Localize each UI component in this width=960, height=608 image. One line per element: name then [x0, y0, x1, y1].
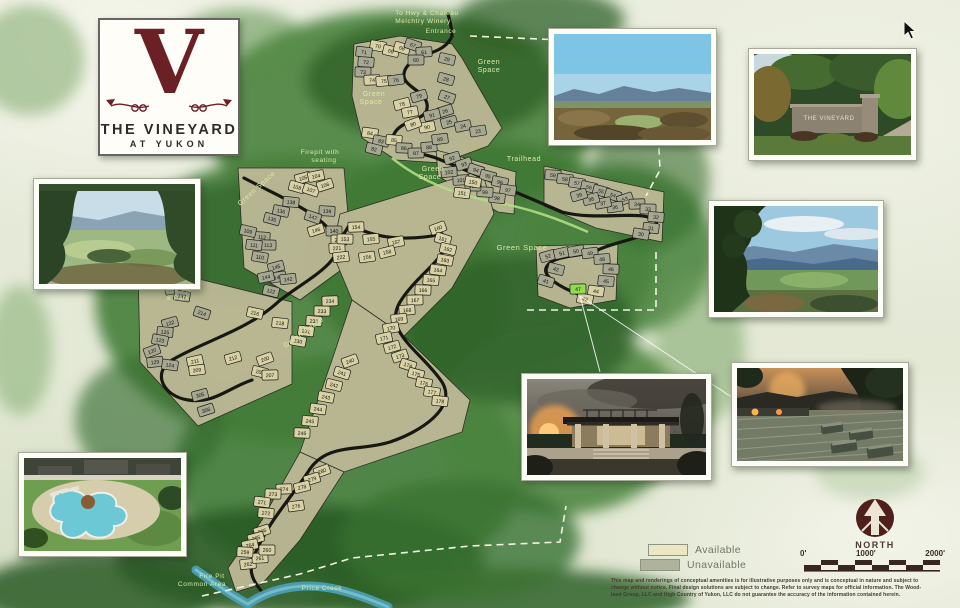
lot-parcel: 111 [245, 239, 262, 251]
lot-number: 222 [336, 255, 345, 262]
lot-number: 45 [603, 279, 609, 285]
lot-number: 142 [283, 277, 292, 284]
unavailable-swatch [640, 559, 680, 571]
lot-number: 113 [264, 243, 272, 249]
lot-number: 261 [256, 556, 265, 562]
photo-entrance-sign: THE VINEYARD [748, 48, 917, 161]
legend-row-unavailable: Unavailable [640, 559, 746, 571]
map-label: Melchtry Winery [395, 18, 451, 25]
lot-number: 102 [444, 170, 453, 177]
lot-number: 209 [192, 367, 201, 374]
scale-tick-0: 0' [800, 549, 806, 558]
map-label: Green Space [497, 243, 548, 252]
lot-parcel: 71 [355, 46, 372, 58]
lot-parcel: 246 [294, 428, 310, 439]
lot-number: 234 [326, 299, 335, 305]
lot-number: 30 [637, 232, 644, 239]
map-label: Space [360, 99, 383, 106]
north-indicator: NORTH [840, 497, 910, 550]
map-label: Entrance [426, 28, 457, 35]
map-label: Green [478, 59, 500, 66]
lot-number: 44 [593, 289, 600, 296]
logo-name: THE VINEYARD [100, 122, 238, 138]
lot-parcel: 142 [280, 273, 297, 285]
lot-number: 155 [367, 237, 376, 244]
lot-number: 75 [381, 79, 387, 85]
lot-number: 245 [305, 419, 314, 426]
lot-parcel: 151 [453, 187, 470, 199]
lot-parcel: 72 [358, 56, 375, 67]
lot-number: 271 [257, 499, 266, 506]
available-swatch [648, 544, 688, 556]
photo-pool-aerial [18, 452, 187, 557]
lot-parcel: 259 [237, 547, 254, 558]
available-label: Available [695, 544, 741, 556]
lot-parcel: 32 [648, 211, 665, 222]
map-label: Green [363, 91, 385, 98]
lot-parcel: 233 [314, 306, 330, 316]
lot-number: 129 [150, 359, 159, 366]
lot-number: 87 [413, 151, 419, 157]
lot-parcel: 164 [429, 264, 446, 276]
lot-number: 98 [494, 196, 500, 203]
lot-parcel: 46 [603, 264, 619, 275]
lot-parcel: 124 [161, 359, 178, 371]
lot-parcel: 76 [387, 74, 404, 86]
lot-number: 97 [505, 188, 512, 195]
lot-parcel: 154 [348, 222, 364, 233]
disclaimer-line-1: This map and renderings of conceptual am… [611, 578, 955, 585]
lot-parcel: 178 [432, 395, 449, 407]
lot-number: 165 [426, 278, 435, 285]
map-label: Common Area [178, 581, 226, 588]
photo-deck-rendering [731, 362, 909, 467]
lot-parcel: 260 [259, 545, 275, 555]
map-label: seating [311, 157, 336, 164]
lot-number: 138 [286, 200, 295, 207]
lot-number: 260 [263, 548, 272, 554]
lot-parcel: 89 [431, 133, 448, 145]
logo-letter-v: V [100, 22, 238, 102]
map-label: Space [419, 174, 442, 181]
lot-number: 273 [269, 492, 278, 498]
lot-parcel: 45 [598, 275, 615, 286]
lot-parcel: 218 [272, 317, 289, 329]
map-label: Price Creek [302, 585, 343, 592]
lot-parcel: 155 [363, 233, 380, 244]
lot-number: 89 [437, 137, 444, 144]
legend-row-available: Available [648, 544, 746, 556]
disclaimer-text: This map and renderings of conceptual am… [611, 578, 955, 599]
lot-number: 221 [333, 246, 342, 252]
lot-number: 272 [261, 511, 270, 518]
lot-number: 164 [433, 267, 443, 274]
lot-parcel: 272 [258, 507, 275, 518]
lot-number: 151 [457, 190, 466, 197]
photo-clubhouse-rendering [521, 373, 712, 481]
legend: Available Unavailable [648, 544, 746, 574]
lot-number: 50 [573, 249, 580, 256]
lot-number: 76 [393, 78, 400, 85]
lot-parcel: 222 [333, 251, 350, 263]
lot-number: 166 [419, 288, 428, 294]
lot-number: 156 [362, 254, 372, 261]
lot-number: 32 [653, 215, 659, 221]
lot-parcel: 167 [407, 295, 423, 305]
lot-parcel: 209 [188, 364, 205, 376]
mouse-cursor-icon [903, 20, 917, 40]
lot-number: 88 [426, 145, 432, 151]
compass-icon [853, 497, 897, 539]
lot-parcel: 156 [358, 251, 375, 263]
lot-parcel: 234 [322, 296, 338, 307]
lot-parcel: 271 [253, 496, 270, 508]
lot-number: 48 [599, 257, 605, 263]
map-label: Trailhead [507, 156, 541, 163]
lot-parcel: 276 [287, 500, 304, 512]
lot-number: 34 [634, 202, 640, 208]
lot-parcel: 244 [309, 403, 326, 415]
lot-number: 167 [411, 298, 420, 304]
lot-number: 58 [562, 177, 568, 184]
lot-number: 57 [574, 181, 581, 188]
scale-bar-graphic [800, 558, 945, 572]
lot-number: 86 [401, 146, 407, 152]
scale-tick-1000: 1000' [856, 549, 876, 558]
map-label: To Hwy & Chateau [395, 10, 458, 17]
lot-parcel: 165 [423, 274, 440, 285]
photo-mountain-view-right [708, 200, 884, 318]
lot-number: 101 [457, 178, 466, 184]
map-label: & Park [166, 295, 189, 302]
lot-number: 218 [275, 321, 284, 328]
unavailable-label: Unavailable [687, 559, 746, 571]
lot-number: 46 [608, 267, 614, 273]
lot-number: 74 [369, 78, 375, 84]
grapevine-flourish-icon [105, 97, 233, 115]
disclaimer-line-3: land Group, LLC and High Country of Yuko… [611, 592, 955, 599]
map-label: Firepit with [301, 149, 340, 156]
lot-parcel: 48 [594, 253, 611, 264]
lot-number: 72 [363, 60, 369, 66]
lot-parcel: 60 [408, 55, 424, 65]
lot-number: 23 [475, 129, 482, 136]
lot-number: 84 [367, 131, 374, 138]
lot-number: 49 [587, 251, 594, 258]
site-map-page: 7071727374757669686761602928272625242379… [0, 0, 960, 608]
lot-number: 178 [435, 399, 444, 406]
lot-number: 111 [250, 243, 259, 250]
lot-number: 139 [322, 209, 331, 215]
lot-number: 59 [550, 173, 556, 179]
lot-parcel: 166 [415, 285, 431, 296]
entrance-sign-text: THE VINEYARD [803, 116, 854, 122]
lot-number: 154 [352, 225, 361, 231]
lot-number: 60 [413, 58, 419, 64]
lot-parcel: 245 [302, 415, 319, 426]
lot-number: 233 [318, 309, 327, 315]
map-label: Space [478, 67, 501, 74]
lot-parcel: 129 [146, 356, 163, 368]
lot-number: 70 [374, 44, 381, 51]
lot-number: 259 [240, 550, 249, 556]
lot-number: 246 [298, 431, 307, 437]
disclaimer-line-2: change without notice. Final design solu… [611, 585, 955, 592]
lot-number: 276 [291, 503, 301, 510]
lot-parcel: 47 [570, 284, 586, 294]
lot-number: 244 [313, 406, 323, 413]
lot-number: 36 [612, 205, 619, 212]
lot-parcel: 153 [337, 234, 353, 244]
photo-mountain-view-left [33, 178, 201, 290]
lot-number: 262 [243, 562, 252, 569]
logo-subname: AT YUKON [100, 139, 238, 149]
photo-mountain-vista-top [548, 28, 717, 146]
vineyard-logo: V THE VINEYARD AT YUKON [98, 18, 240, 156]
scale-bar: 0' 1000' 2000' [800, 549, 945, 577]
lot-number: 153 [341, 237, 350, 243]
lot-number: 47 [575, 287, 581, 293]
lot-number: 71 [361, 50, 368, 57]
lot-number: 207 [266, 373, 275, 379]
map-label: Fire Pit [199, 573, 224, 580]
scale-tick-2000: 2000' [925, 549, 945, 558]
lot-parcel: 138 [283, 196, 300, 208]
map-label: Green [422, 166, 444, 173]
lot-number: 99 [482, 190, 488, 196]
lot-number: 90 [424, 125, 431, 132]
lot-parcel: 207 [262, 370, 278, 380]
lot-parcel: 23 [469, 125, 486, 137]
lot-number: 124 [165, 362, 175, 369]
